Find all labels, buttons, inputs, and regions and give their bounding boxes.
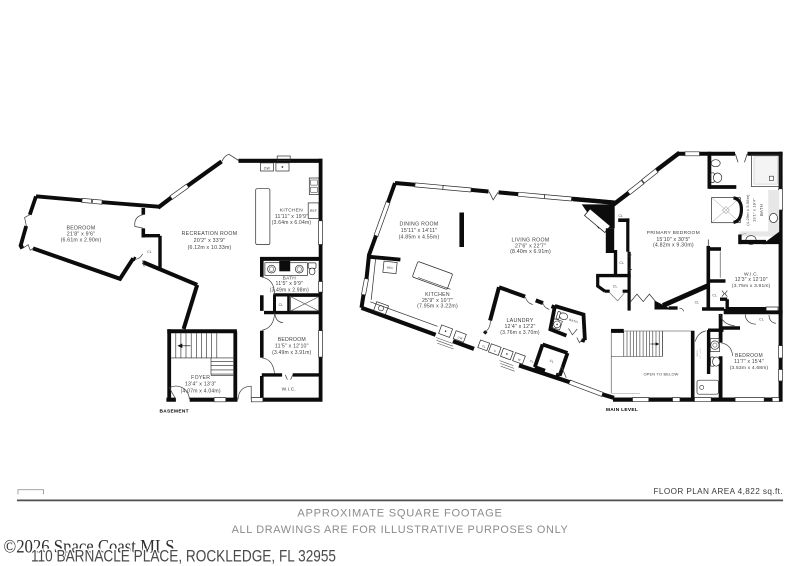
svg-text:12'4" x 12'2": 12'4" x 12'2" bbox=[504, 324, 535, 330]
svg-text:11'5" x 9'9": 11'5" x 9'9" bbox=[276, 281, 304, 287]
svg-text:15'11" x 14'11": 15'11" x 14'11" bbox=[401, 228, 437, 234]
svg-text:CL: CL bbox=[147, 250, 152, 254]
svg-text:CL: CL bbox=[279, 303, 284, 307]
svg-text:(3.64m x 6.04m): (3.64m x 6.04m) bbox=[272, 220, 312, 226]
svg-text:(4.07m x 4.04m): (4.07m x 4.04m) bbox=[181, 388, 221, 394]
svg-text:APPROXIMATE SQUARE FOOTAGE: APPROXIMATE SQUARE FOOTAGE bbox=[297, 508, 502, 520]
svg-text:CL: CL bbox=[695, 300, 700, 304]
svg-text:W.I.C.: W.I.C. bbox=[282, 386, 296, 392]
svg-text:ALL DRAWINGS ARE FOR ILLUSTRAT: ALL DRAWINGS ARE FOR ILLUSTRATIVE PURPOS… bbox=[232, 524, 569, 536]
svg-text:(6.61m x 2.90m): (6.61m x 2.90m) bbox=[61, 238, 102, 244]
svg-text:12'3" x 12'10": 12'3" x 12'10" bbox=[735, 277, 768, 283]
svg-text:(3.49m x 2.98m): (3.49m x 2.98m) bbox=[270, 287, 310, 293]
svg-text:20'2" x 33'9": 20'2" x 33'9" bbox=[194, 238, 226, 244]
svg-text:(7.95m x 3.22m): (7.95m x 3.22m) bbox=[417, 304, 458, 310]
svg-text:(3.53m x 4.68m): (3.53m x 4.68m) bbox=[730, 365, 769, 371]
svg-text:110 BARNACLE PLACE, ROCKLEDGE,: 110 BARNACLE PLACE, ROCKLEDGE, FL 32955 bbox=[31, 548, 336, 566]
svg-text:(4.25m x 5.58m): (4.25m x 5.58m) bbox=[745, 194, 750, 226]
svg-text:(4.82m x 9.30m): (4.82m x 9.30m) bbox=[653, 243, 694, 249]
svg-text:REF: REF bbox=[310, 209, 317, 213]
svg-text:PRIMARY BEDROOM: PRIMARY BEDROOM bbox=[647, 230, 700, 236]
svg-text:CL: CL bbox=[759, 318, 764, 322]
svg-text:CL: CL bbox=[619, 261, 624, 265]
svg-text:(4.85m x 4.55m): (4.85m x 4.55m) bbox=[399, 235, 440, 241]
svg-text:LAUNDRY: LAUNDRY bbox=[506, 318, 533, 324]
svg-text:(3.76m x 3.70m): (3.76m x 3.70m) bbox=[500, 330, 540, 336]
svg-text:LIVING ROOM: LIVING ROOM bbox=[512, 238, 550, 244]
svg-text:21'8" x 9'6": 21'8" x 9'6" bbox=[67, 231, 96, 237]
svg-text:FLOOR PLAN AREA 4,822 sq.ft.: FLOOR PLAN AREA 4,822 sq.ft. bbox=[653, 487, 783, 496]
svg-text:MAIN LEVEL: MAIN LEVEL bbox=[606, 407, 638, 413]
svg-text:(6.12m x 10.33m): (6.12m x 10.33m) bbox=[188, 245, 232, 251]
svg-text:OPEN TO BELOW: OPEN TO BELOW bbox=[643, 371, 678, 376]
svg-text:CL: CL bbox=[712, 293, 717, 297]
svg-text:REF: REF bbox=[387, 266, 394, 271]
svg-text:5'1" x 9'0": 5'1" x 9'0" bbox=[700, 347, 702, 358]
svg-text:CL: CL bbox=[619, 214, 624, 218]
svg-text:KITCHEN: KITCHEN bbox=[280, 208, 303, 214]
svg-text:BEDROOM: BEDROOM bbox=[278, 337, 306, 343]
svg-text:RECREATION ROOM: RECREATION ROOM bbox=[182, 231, 238, 237]
svg-text:13'4" x 13'3": 13'4" x 13'3" bbox=[185, 382, 217, 388]
svg-text:CL: CL bbox=[613, 284, 618, 288]
svg-text:FOYER: FOYER bbox=[191, 375, 210, 381]
svg-text:(8.40m x 6.91m): (8.40m x 6.91m) bbox=[510, 249, 551, 255]
svg-text:BASEMENT: BASEMENT bbox=[160, 408, 189, 414]
svg-text:13'1" x 18'4": 13'1" x 18'4" bbox=[752, 198, 757, 222]
svg-text:DINING ROOM: DINING ROOM bbox=[399, 222, 438, 228]
svg-text:BATH: BATH bbox=[759, 204, 764, 216]
svg-text:11'11" x 19'9": 11'11" x 19'9" bbox=[275, 214, 308, 220]
svg-text:11'5" x 12'10": 11'5" x 12'10" bbox=[275, 344, 309, 350]
svg-text:BATH: BATH bbox=[696, 350, 699, 357]
svg-text:(3.75m x 3.91m): (3.75m x 3.91m) bbox=[732, 283, 771, 289]
svg-text:DW: DW bbox=[264, 166, 271, 170]
svg-text:(3.49m x 3.91m): (3.49m x 3.91m) bbox=[272, 350, 312, 356]
svg-text:11'7" x 15'4": 11'7" x 15'4" bbox=[734, 359, 764, 365]
